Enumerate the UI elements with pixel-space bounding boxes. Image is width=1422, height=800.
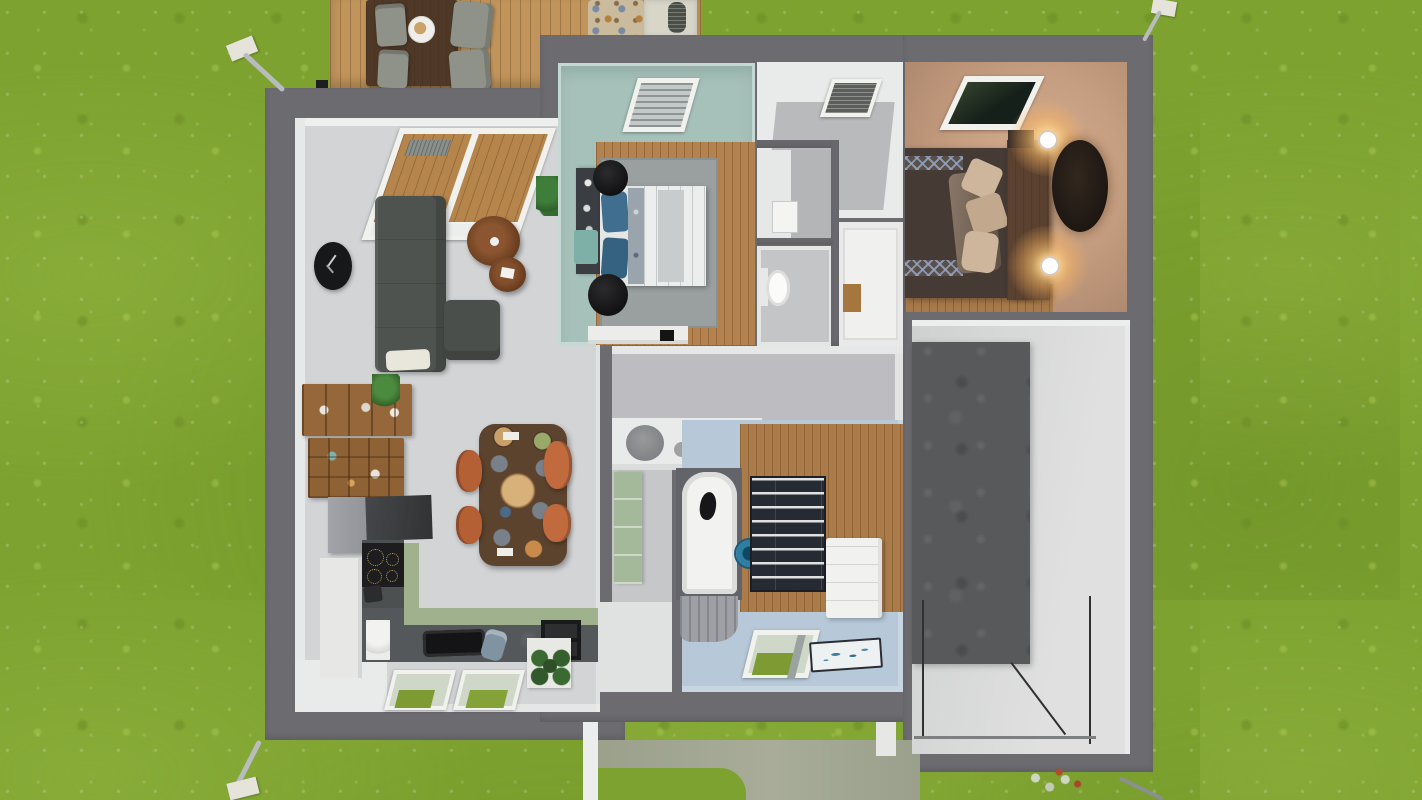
railing-post — [1089, 596, 1091, 744]
wavy-rug[interactable] — [750, 476, 826, 592]
pillow-beige — [960, 230, 999, 274]
cooktop[interactable] — [362, 543, 404, 587]
clock-hand — [327, 255, 336, 267]
teal-ottoman[interactable] — [574, 230, 598, 264]
downspout-block-sw — [226, 777, 259, 800]
nightstand-dark[interactable] — [1008, 130, 1034, 148]
path-grass-patch — [594, 768, 746, 800]
floor-roof-window-right[interactable] — [453, 670, 525, 710]
shelf-plant[interactable] — [372, 374, 400, 408]
outdoor-plate-food[interactable] — [408, 16, 435, 43]
coffee-cup — [490, 237, 499, 246]
kitchen-floor-extension — [598, 602, 672, 692]
bath-mat-fish[interactable] — [809, 638, 883, 673]
dining-chair-rust[interactable] — [543, 504, 571, 542]
wall-sconce[interactable] — [1042, 258, 1058, 274]
toilet[interactable] — [766, 270, 790, 306]
clock-hand — [326, 265, 334, 274]
drain-pipe-se — [1118, 776, 1163, 800]
dining-chair-rust[interactable] — [456, 450, 482, 492]
floorplan-scene — [0, 0, 1422, 800]
roof-window-blinds — [629, 83, 694, 127]
bathroom-floor-roof-window[interactable] — [742, 630, 820, 678]
blanket-gray-band — [658, 190, 684, 282]
wall-shelf-unit-lower[interactable] — [308, 438, 404, 498]
wall-clock[interactable] — [314, 242, 352, 290]
patterned-pillow-band — [628, 188, 644, 284]
napkin — [497, 548, 513, 556]
kitchen-hood-dark[interactable] — [365, 495, 432, 541]
zigzag-band — [905, 260, 963, 276]
round-basin[interactable] — [626, 425, 664, 461]
railing-post — [922, 600, 924, 738]
bathtub[interactable] — [682, 472, 737, 594]
zigzag-band — [905, 156, 963, 170]
burner — [386, 553, 399, 566]
wall-sconce[interactable] — [1040, 132, 1056, 148]
path-pillar-right — [876, 722, 896, 756]
room-hall-nook[interactable] — [757, 150, 833, 238]
wood-drawer — [843, 284, 861, 312]
sofa-chaise[interactable] — [444, 300, 500, 360]
magazine — [500, 267, 515, 279]
pillow-blue — [601, 191, 630, 233]
nook-floor — [791, 150, 833, 238]
coffee-maker[interactable] — [363, 585, 383, 603]
downspout-block-nw — [226, 35, 258, 61]
kettle[interactable] — [366, 620, 390, 660]
teal-room-dresser[interactable] — [588, 326, 688, 344]
grass-through-glass — [395, 690, 435, 708]
bed-teal-room[interactable] — [600, 186, 706, 286]
vent-grille — [825, 83, 877, 113]
outdoor-chair[interactable] — [375, 3, 408, 47]
tv-small — [660, 330, 674, 341]
sofa-l-shaped[interactable] — [375, 196, 446, 372]
roof-window-vent-grille — [404, 140, 452, 156]
sink-basin — [545, 624, 577, 638]
grass-through-glass — [466, 690, 508, 708]
wall-inner — [757, 140, 837, 148]
dining-chair-rust[interactable] — [544, 441, 572, 489]
black-tray[interactable] — [423, 629, 486, 657]
plant-large[interactable] — [524, 640, 576, 692]
room-closet[interactable] — [838, 222, 903, 346]
pillow-blue — [601, 237, 630, 279]
dining-chair-rust[interactable] — [456, 506, 482, 544]
burner — [367, 569, 382, 584]
cat-in-tub[interactable] — [698, 491, 718, 521]
railing-base — [914, 736, 1096, 739]
storage-dark-area — [912, 342, 1030, 664]
outdoor-chair[interactable] — [450, 0, 495, 50]
burner — [386, 570, 398, 582]
white-tall-cabinet[interactable] — [320, 558, 362, 678]
wood-headboard[interactable] — [1007, 140, 1049, 300]
garden-hose[interactable] — [1028, 766, 1090, 796]
floor-roof-window-left[interactable] — [384, 670, 456, 710]
green-shelf-unit[interactable] — [614, 472, 642, 584]
burner — [367, 549, 384, 566]
oval-rug-dark[interactable] — [1052, 140, 1108, 232]
path-pillar-left — [583, 722, 598, 800]
outdoor-chair[interactable] — [448, 48, 491, 91]
deck-pebble-rug[interactable] — [588, 0, 644, 38]
roof-window-dark-glass — [948, 82, 1036, 124]
outdoor-chair[interactable] — [377, 49, 409, 89]
napkin — [503, 432, 519, 440]
sofa-white-cushion[interactable] — [386, 349, 431, 371]
bathroom-dresser[interactable] — [826, 538, 882, 618]
black-stool[interactable] — [593, 160, 628, 196]
coffee-table-small[interactable] — [489, 257, 526, 292]
sink-box[interactable] — [773, 202, 797, 232]
grill[interactable] — [668, 2, 686, 33]
room-pantry[interactable] — [612, 470, 672, 602]
room-hallway[interactable] — [612, 346, 903, 420]
shower-curtain — [680, 596, 738, 642]
black-stool[interactable] — [588, 274, 628, 316]
downspout-pipe-nw — [243, 52, 286, 92]
wall-inner — [757, 238, 833, 245]
room-wc[interactable] — [757, 246, 833, 346]
